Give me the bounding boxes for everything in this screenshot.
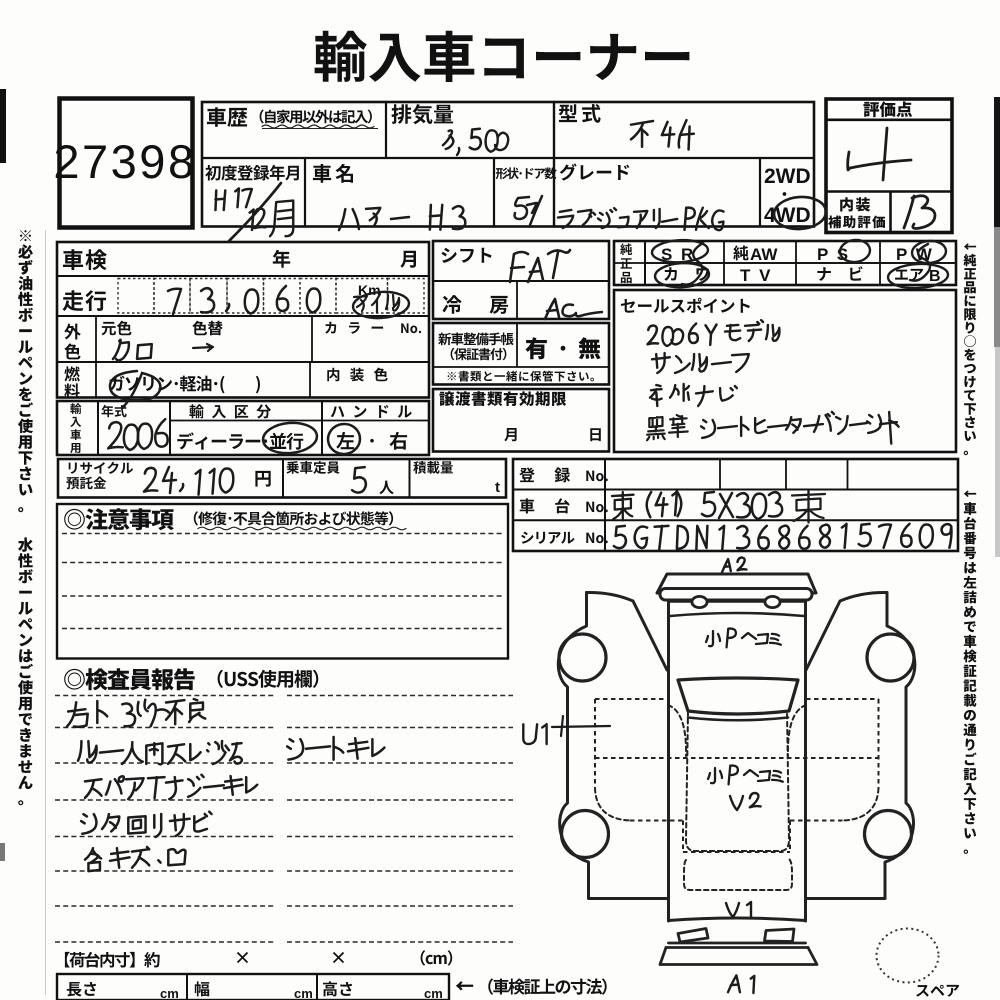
svg-text:4WD: 4WD bbox=[764, 204, 811, 227]
svg-text:cm: cm bbox=[160, 986, 179, 1000]
svg-text:cm: cm bbox=[424, 986, 443, 1000]
svg-text:T V: T V bbox=[740, 266, 772, 285]
svg-text:cm: cm bbox=[294, 986, 313, 1000]
svg-text:27398: 27398 bbox=[53, 135, 196, 188]
svg-text:AW: AW bbox=[750, 245, 778, 264]
svg-text:t: t bbox=[495, 479, 500, 496]
svg-text:P S: P S bbox=[817, 245, 850, 264]
